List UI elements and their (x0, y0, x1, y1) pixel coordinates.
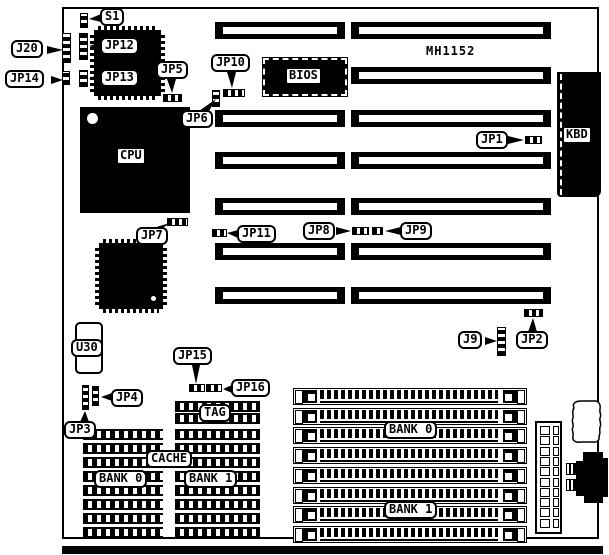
label-jp11: JP11 (237, 225, 276, 243)
simm-bank1-label: BANK 1 (384, 501, 437, 519)
label-jp5: JP5 (156, 61, 188, 79)
label-jp13: JP13 (100, 69, 139, 87)
cache-label: CACHE (146, 450, 192, 468)
callout-tails-layer (0, 0, 609, 555)
cache-bank1-label: BANK 1 (184, 470, 237, 488)
label-jp10: JP10 (211, 54, 250, 72)
label-jp16: JP16 (231, 379, 270, 397)
label-j9: J9 (458, 331, 482, 349)
label-jp1: JP1 (476, 131, 508, 149)
label-s1: S1 (100, 8, 124, 26)
tag-label: TAG (199, 404, 231, 422)
label-jp2: JP2 (516, 331, 548, 349)
edge-power-connector (576, 452, 608, 503)
label-jp15: JP15 (173, 347, 212, 365)
simm-bank0-label: BANK 0 (384, 421, 437, 439)
u30-label: U30 (71, 339, 103, 357)
cache-bank0-label: BANK 0 (94, 470, 147, 488)
label-jp8: JP8 (303, 222, 335, 240)
label-jp14: JP14 (5, 70, 44, 88)
label-jp12: JP12 (100, 37, 139, 55)
inductor-component (572, 401, 600, 442)
label-jp6: JP6 (181, 110, 213, 128)
label-j20: J20 (11, 40, 43, 58)
label-jp7: JP7 (136, 227, 168, 245)
label-jp3: JP3 (64, 421, 96, 439)
label-jp4: JP4 (111, 389, 143, 407)
motherboard-diagram: BIOS MH1152 KBD CPU (0, 0, 609, 555)
label-jp9: JP9 (400, 222, 432, 240)
